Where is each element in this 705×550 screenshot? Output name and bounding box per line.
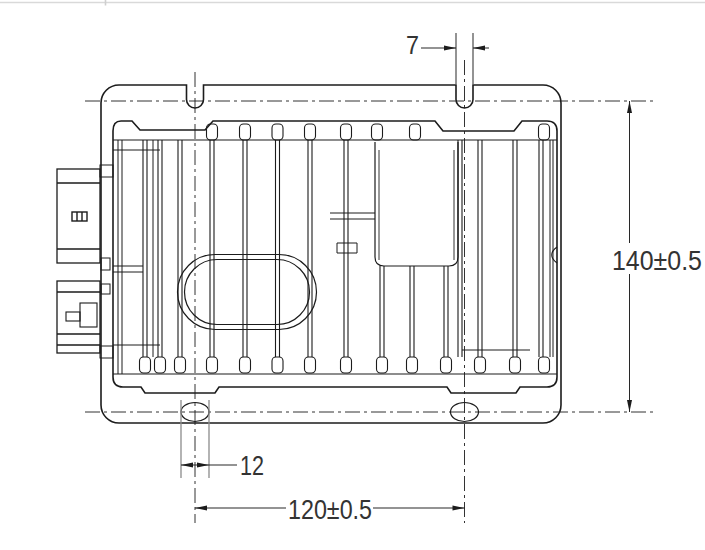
- dim-text-hole-spacing: 120±0.5: [288, 495, 372, 525]
- frame-border: [0, 0, 705, 6]
- rib-tabs-top: [207, 124, 550, 140]
- dim-text-overall-height: 140±0.5: [612, 246, 702, 276]
- housing-details: [113, 150, 530, 350]
- technical-drawing: 7 140±0.5 12 120±0.5: [0, 0, 705, 550]
- flange-plate: [101, 85, 561, 423]
- label-area: [375, 142, 458, 266]
- drawing-canvas: 7 140±0.5 12 120±0.5: [0, 0, 705, 550]
- dimension-overall-height: 140±0.5: [612, 101, 702, 412]
- dim-text-notch-width: 7: [406, 30, 419, 60]
- dim-text-slot-width: 12: [240, 451, 264, 481]
- dimension-hole-spacing: 120±0.5: [195, 495, 465, 525]
- connector-upper: [57, 169, 100, 263]
- clip-tabs: [100, 165, 113, 358]
- cooling-ribs: [143, 140, 543, 357]
- dimension-notch-width: 7: [406, 30, 489, 84]
- connector-lower: [57, 281, 100, 353]
- rib-tabs-bottom: [140, 357, 550, 373]
- connector-key-icon: [72, 212, 87, 221]
- housing-body: [100, 121, 557, 393]
